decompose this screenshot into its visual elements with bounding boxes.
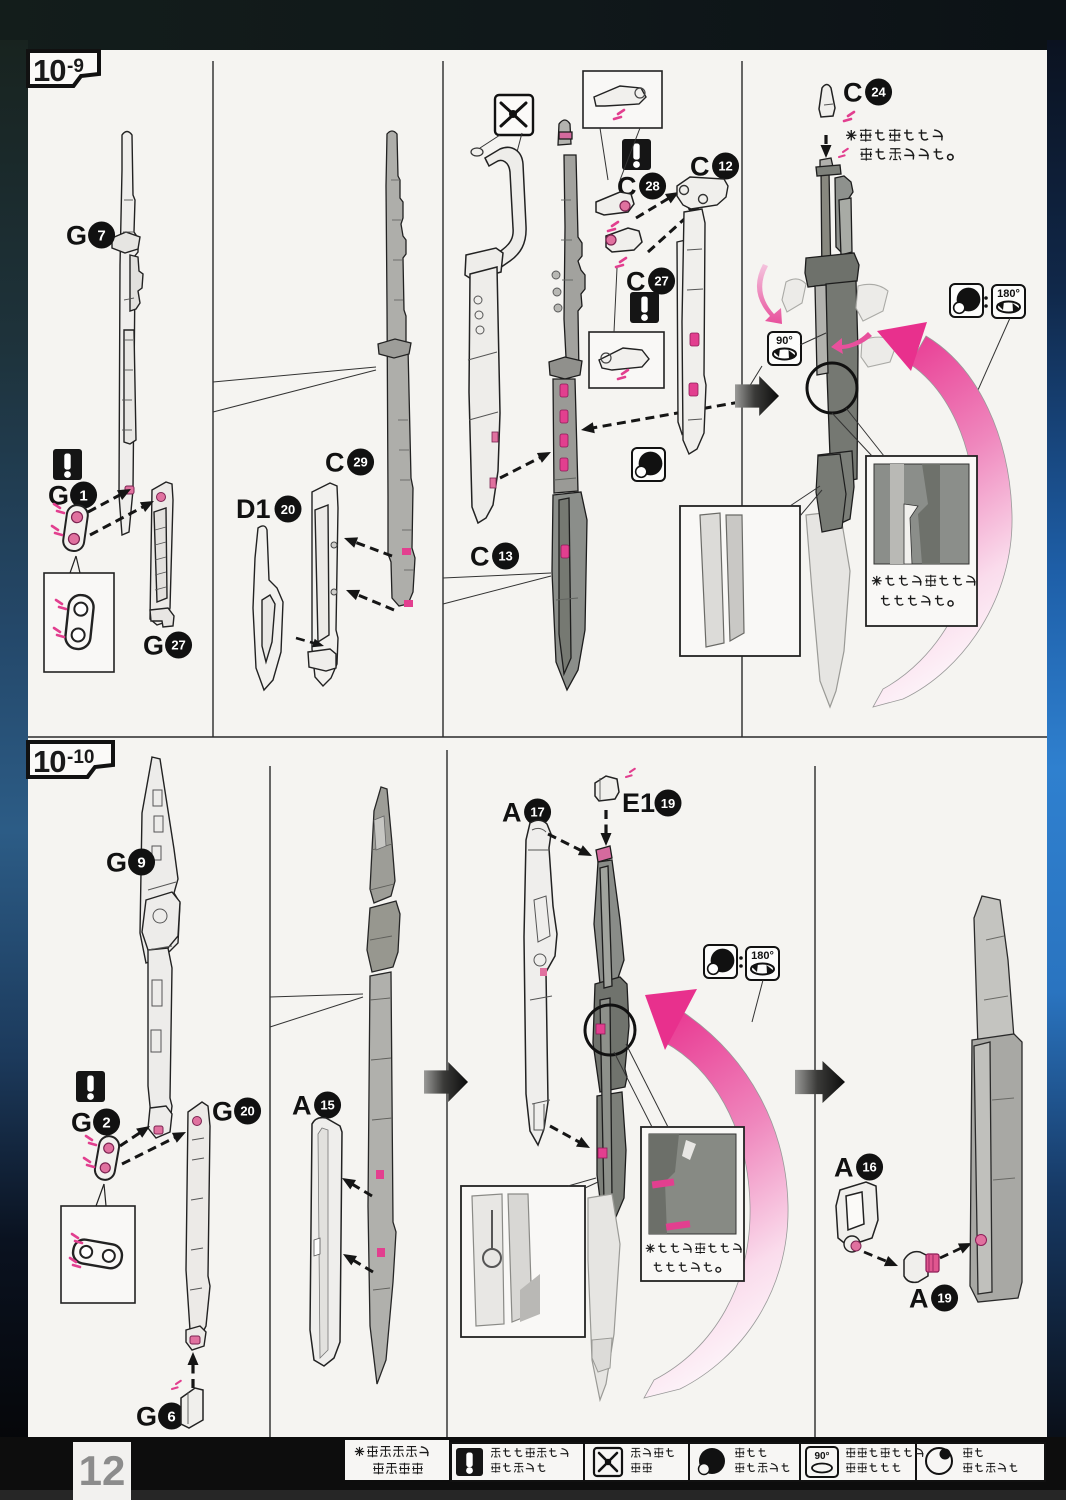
svg-text:13: 13 xyxy=(498,549,512,564)
svg-text:1: 1 xyxy=(79,487,87,504)
svg-text:19: 19 xyxy=(661,796,675,811)
svg-text:E1: E1 xyxy=(622,788,655,818)
svg-text:12: 12 xyxy=(79,1447,126,1494)
svg-text:10: 10 xyxy=(33,53,65,88)
svg-text:G: G xyxy=(212,1097,233,1127)
svg-text:9: 9 xyxy=(137,854,145,871)
svg-text:24: 24 xyxy=(871,85,886,100)
svg-text:90°: 90° xyxy=(776,335,793,347)
svg-text:A: A xyxy=(292,1091,312,1121)
svg-text:G: G xyxy=(71,1108,92,1138)
svg-text:17: 17 xyxy=(530,805,544,820)
svg-text:12: 12 xyxy=(718,159,732,174)
svg-text:G: G xyxy=(143,631,164,661)
svg-text:19: 19 xyxy=(937,1291,951,1306)
svg-text:10: 10 xyxy=(33,744,65,779)
svg-text:A: A xyxy=(909,1284,929,1314)
svg-text:2: 2 xyxy=(102,1114,110,1131)
svg-text:28: 28 xyxy=(645,179,659,194)
svg-text:C: C xyxy=(325,448,345,478)
svg-text:C: C xyxy=(843,78,863,108)
svg-text:27: 27 xyxy=(171,638,185,653)
svg-text:6: 6 xyxy=(167,1408,175,1425)
svg-text:C: C xyxy=(470,542,490,572)
svg-text:G: G xyxy=(106,848,127,878)
svg-text:29: 29 xyxy=(353,455,367,470)
svg-text:A: A xyxy=(834,1153,854,1183)
svg-text:180°: 180° xyxy=(997,288,1020,300)
svg-text:16: 16 xyxy=(862,1160,876,1175)
svg-text:-10: -10 xyxy=(67,747,94,768)
svg-text:G: G xyxy=(136,1402,157,1432)
svg-text:-9: -9 xyxy=(67,56,84,77)
svg-text:15: 15 xyxy=(320,1098,334,1113)
svg-text:27: 27 xyxy=(654,274,668,289)
svg-text:D1: D1 xyxy=(236,494,271,524)
svg-text:G: G xyxy=(66,221,87,251)
svg-text:90°: 90° xyxy=(814,1451,829,1462)
svg-text:A: A xyxy=(502,798,522,828)
svg-text:20: 20 xyxy=(281,502,295,517)
svg-text:20: 20 xyxy=(240,1104,254,1119)
svg-text:180°: 180° xyxy=(751,950,774,962)
svg-text:7: 7 xyxy=(97,227,105,244)
